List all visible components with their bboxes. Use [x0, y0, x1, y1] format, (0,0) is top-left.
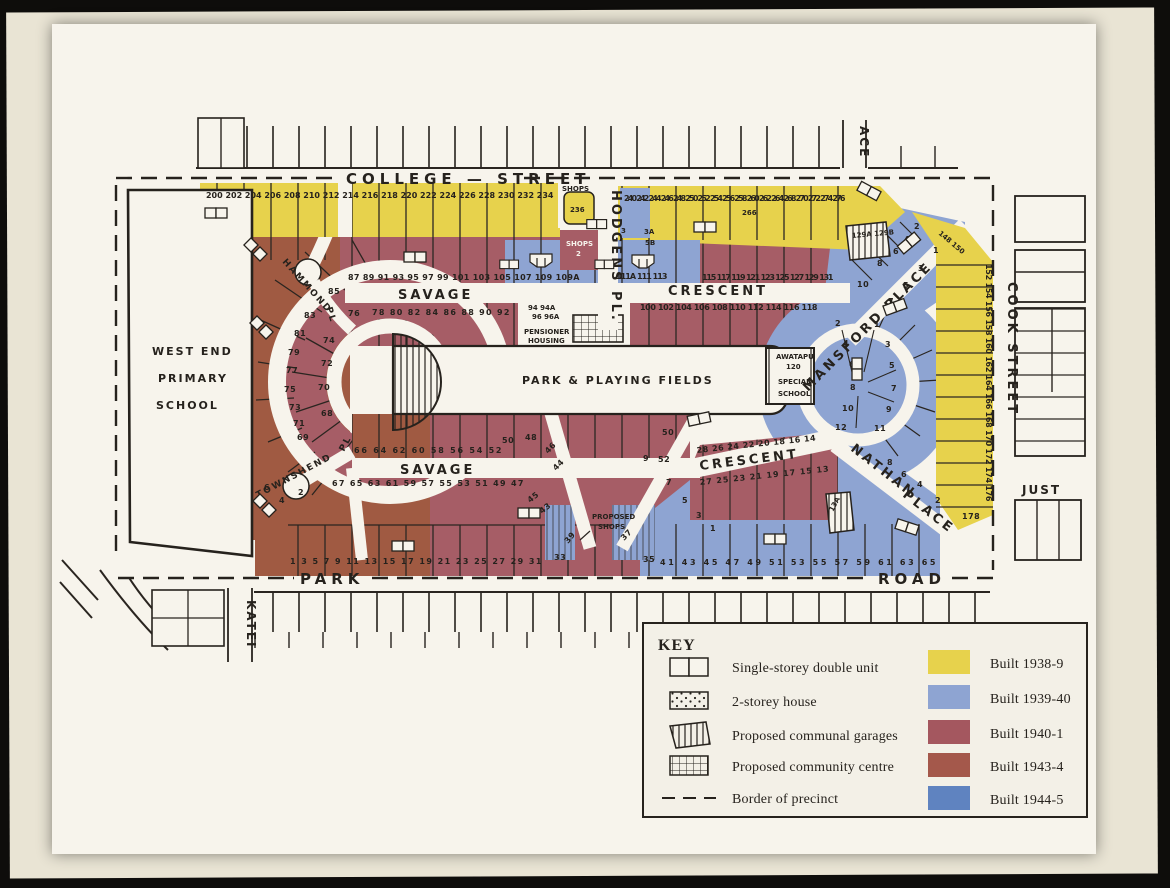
key-label-3: Proposed community centre: [732, 760, 894, 775]
shops2-label-1: SHOPS: [566, 240, 593, 248]
single-storey-double-unit-symbol: [670, 658, 708, 676]
svg-text:200 202 204 206 208 210: 200 202 204 206 208 210 212 214 216 218 …: [206, 191, 554, 200]
svg-text:9: 9: [643, 454, 649, 463]
two-storey-house-symbol: [670, 692, 708, 709]
svg-text:78 80 82 84 86 88 90 92: 78 80 82 84 86 88 90 92: [372, 308, 510, 317]
build-label-4: Built 1944-5: [990, 793, 1064, 808]
street-label-park: PARK: [300, 570, 364, 588]
svg-text:7: 7: [891, 384, 897, 393]
proposed-communal-garages-symbol: [670, 722, 710, 748]
svg-text:71: 71: [293, 419, 305, 428]
svg-text:2: 2: [298, 488, 304, 497]
svg-text:12: 12: [835, 423, 847, 432]
svg-text:3: 3: [696, 511, 702, 520]
svg-text:6: 6: [901, 470, 907, 479]
svg-text:79: 79: [288, 348, 300, 357]
svg-text:WEST END: WEST END: [152, 345, 233, 358]
svg-text:76: 76: [348, 309, 360, 318]
street-label-college: COLLEGE — STREET: [346, 170, 590, 188]
svg-text:5: 5: [903, 281, 909, 290]
svg-text:1: 1: [874, 320, 880, 329]
build-label-2: Built 1940-1: [990, 727, 1064, 742]
cook-street-east-blocks: JUST: [1015, 196, 1085, 560]
street-label-just: JUST: [1021, 483, 1061, 497]
svg-text:1 3 5 7 9 11 13 15 17: 1 3 5 7 9 11 13 15 17 19 21 23 25 27 29 …: [290, 557, 542, 566]
svg-text:50: 50: [502, 436, 514, 445]
svg-text:PRIMARY: PRIMARY: [158, 372, 228, 385]
svg-text:4: 4: [279, 496, 285, 505]
street-label-cook: COOK STREET: [1004, 282, 1019, 416]
shops2-label-2: 2: [576, 250, 581, 258]
svg-text:PROPOSED: PROPOSED: [592, 513, 635, 521]
svg-text:8: 8: [887, 458, 893, 467]
street-label-katei: KATEI: [244, 600, 258, 649]
svg-text:9: 9: [886, 405, 892, 414]
svg-text:2: 2: [835, 319, 841, 328]
street-label-savage-upper: SAVAGE: [398, 288, 473, 303]
build-label-1: Built 1939-40: [990, 692, 1071, 707]
svg-text:2: 2: [914, 222, 920, 231]
park-fields-label: PARK & PLAYING FIELDS: [522, 374, 714, 387]
swatch-1938-9: [928, 650, 970, 674]
key-label-1: 2-storey house: [732, 695, 817, 710]
svg-text:100 102 104 106 108 110: 100 102 104 106 108 110 112 114 116 118: [640, 303, 818, 312]
svg-text:PENSIONER: PENSIONER: [524, 328, 570, 336]
svg-text:240 242 244 246 248 250: 240 242 244 246 248 250 252 254 256 258 …: [624, 194, 846, 203]
svg-text:7: 7: [666, 478, 672, 487]
svg-text:74: 74: [323, 336, 335, 345]
svg-text:67 65 63 61 59 57 55 53: 67 65 63 61 59 57 55 53 51 49 47: [332, 479, 524, 488]
svg-text:11: 11: [874, 424, 886, 433]
svg-text:111A 111 113: 111A 111 113: [616, 272, 668, 281]
svg-text:94 94A: 94 94A: [528, 304, 556, 312]
svg-text:3: 3: [918, 264, 924, 273]
svg-text:66 64 62 60 58 56 54 52: 66 64 62 60 58 56 54 52: [354, 446, 502, 455]
build-label-3: Built 1943-4: [990, 760, 1064, 775]
svg-text:5B: 5B: [645, 239, 655, 247]
svg-text:50: 50: [662, 428, 674, 437]
awatapu-label-1: AWATAPU: [776, 353, 814, 361]
svg-text:6: 6: [893, 247, 899, 256]
svg-text:73: 73: [289, 403, 301, 412]
svg-text:81: 81: [294, 329, 306, 338]
lot-236: 236: [570, 206, 585, 214]
svg-text:48: 48: [525, 433, 537, 442]
svg-text:8: 8: [877, 259, 883, 268]
svg-text:52: 52: [658, 455, 670, 464]
svg-text:33: 33: [554, 553, 566, 562]
svg-text:68: 68: [321, 409, 333, 418]
svg-text:266: 266: [742, 209, 757, 217]
svg-text:4: 4: [917, 480, 923, 489]
swatch-1944-5: [928, 786, 970, 810]
svg-text:1: 1: [710, 524, 716, 533]
swatch-1943-4: [928, 753, 970, 777]
proposed-community-centre-key-symbol: [670, 756, 708, 775]
street-label-hodgens: HODGENS PL.: [608, 190, 623, 323]
key-label-4: Border of precinct: [732, 792, 838, 807]
svg-text:SHOPS: SHOPS: [598, 523, 625, 531]
precinct-map: ACE KATEI JUST: [0, 0, 1170, 888]
street-label-crescent-upper: CRESCENT: [668, 284, 768, 299]
svg-text:1: 1: [933, 246, 939, 255]
svg-text:72: 72: [321, 359, 333, 368]
svg-text:152 154 156 158 160 162: 152 154 156 158 160 162 164 166 168 170 …: [984, 264, 993, 502]
north-of-college-houses: ACE: [196, 118, 958, 170]
svg-text:HOUSING: HOUSING: [528, 337, 565, 345]
svg-text:87 89 91 93 95 97 99 10: 87 89 91 93 95 97 99 101 103 105 107 109…: [348, 273, 580, 282]
svg-text:3: 3: [885, 340, 891, 349]
svg-text:75: 75: [284, 385, 296, 394]
svg-text:83: 83: [304, 311, 316, 320]
svg-text:70: 70: [318, 383, 330, 392]
swatch-1939-40: [928, 685, 970, 709]
street-label-road: ROAD: [878, 570, 946, 588]
svg-text:5: 5: [889, 361, 895, 370]
key-label-2: Proposed communal garages: [732, 729, 898, 744]
svg-text:10: 10: [842, 404, 854, 413]
svg-text:3: 3: [621, 227, 626, 235]
swatch-1940-1: [928, 720, 970, 744]
svg-text:69: 69: [297, 433, 309, 442]
svg-text:5: 5: [682, 496, 688, 505]
west-end-primary-school: WEST END PRIMARY SCHOOL: [128, 190, 252, 556]
svg-text:77: 77: [286, 366, 298, 375]
svg-text:8: 8: [850, 383, 856, 392]
shops-north-label: SHOPS: [562, 185, 589, 193]
key-label-0: Single-storey double unit: [732, 661, 879, 676]
svg-text:178: 178: [962, 512, 980, 521]
svg-text:10: 10: [857, 280, 869, 289]
street-label-savage-lower: SAVAGE: [400, 463, 475, 478]
svg-text:85: 85: [328, 287, 340, 296]
svg-text:115 117 119 121 123 125: 115 117 119 121 123 125 127 129 131: [702, 273, 834, 282]
svg-text:35: 35: [643, 555, 655, 564]
svg-text:3A: 3A: [644, 228, 655, 236]
svg-text:96 96A: 96 96A: [532, 313, 560, 321]
key-box: KEY Single-storey double unit 2-storey h…: [643, 623, 1087, 817]
svg-text:4: 4: [843, 339, 849, 348]
key-title: KEY: [658, 637, 696, 654]
awatapu-label-2: 120: [786, 363, 801, 371]
svg-text:SCHOOL: SCHOOL: [156, 399, 219, 412]
svg-text:6: 6: [264, 483, 270, 492]
build-label-0: Built 1938-9: [990, 657, 1064, 672]
svg-text:2: 2: [935, 496, 941, 505]
